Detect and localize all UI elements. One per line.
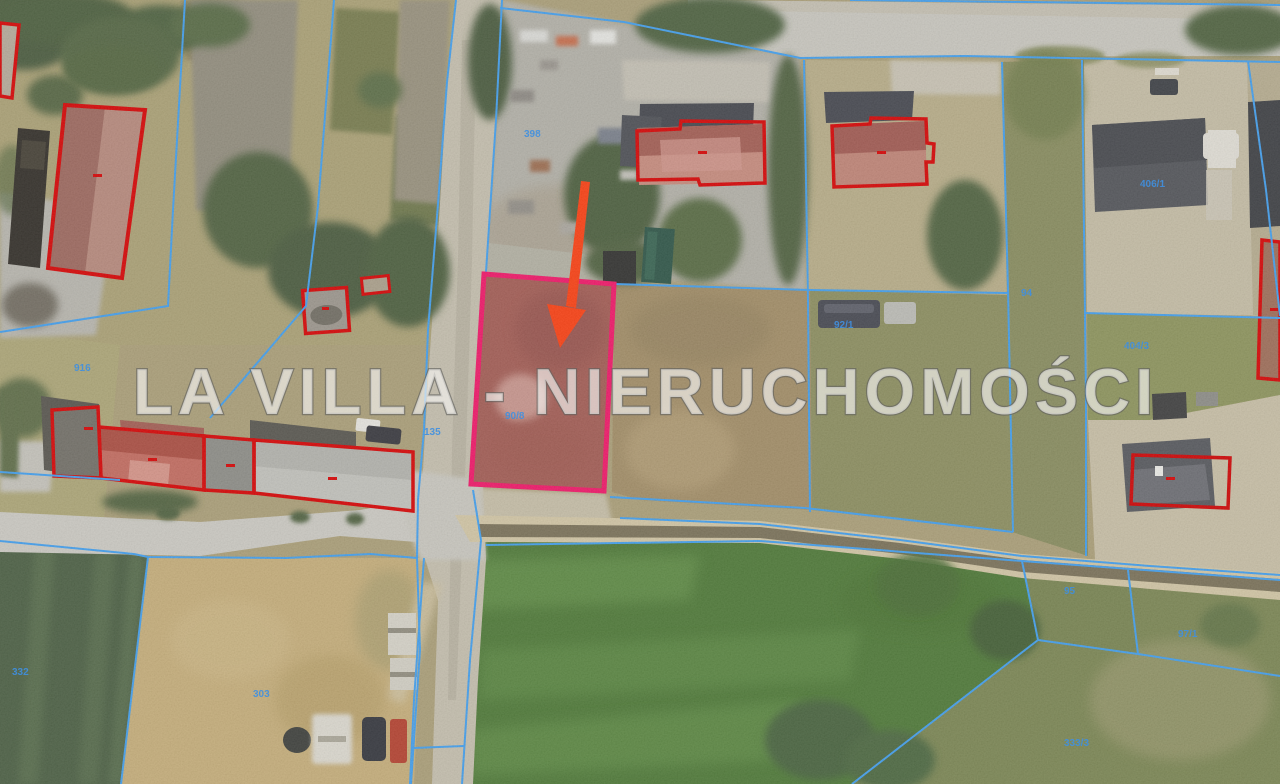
svg-text:LA VILLA - NIERUCHOMOŚCI: LA VILLA - NIERUCHOMOŚCI bbox=[133, 355, 1158, 428]
